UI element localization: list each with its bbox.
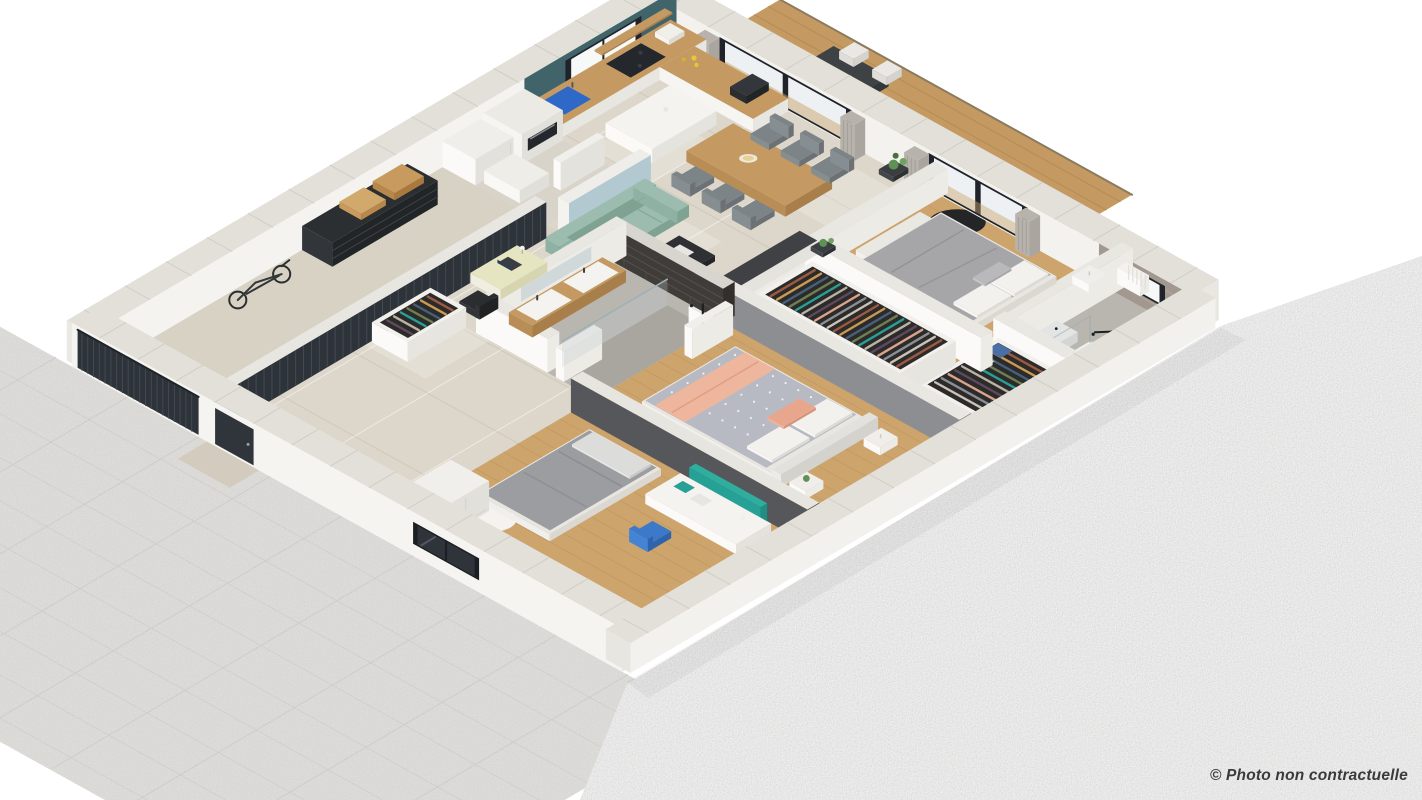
floorplan-3d-render [0, 0, 1422, 800]
floorplan-screenshot: © Photo non contractuelle [0, 0, 1422, 800]
watermark-caption: © Photo non contractuelle [1210, 767, 1408, 785]
